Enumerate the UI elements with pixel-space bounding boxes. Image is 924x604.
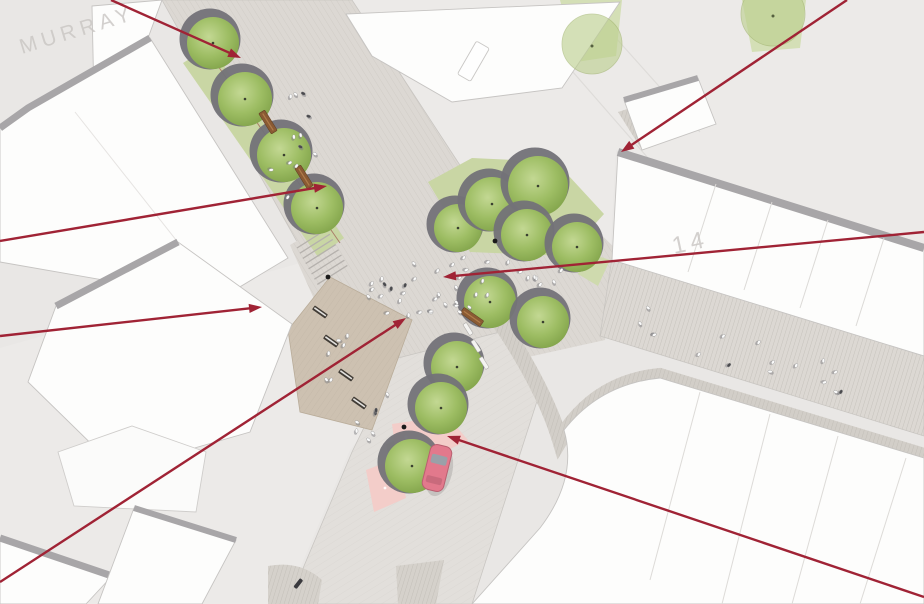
tree-trunk (440, 407, 443, 410)
pedestrian-body (336, 339, 340, 342)
tree-trunk (411, 465, 414, 468)
masterplan-drawing: MURRAY14 (0, 0, 924, 604)
bollard (326, 275, 331, 280)
pedestrian-body (355, 429, 358, 434)
pedestrian-body (375, 408, 378, 412)
pedestrian-body (327, 351, 330, 355)
tree-trunk (489, 301, 492, 304)
tree-trunk (576, 246, 579, 249)
bollard (493, 239, 498, 244)
pedestrian-body (398, 298, 401, 303)
tree-trunk (591, 45, 594, 48)
masterplan-canvas: MURRAY14 (0, 0, 924, 604)
tree-trunk (542, 321, 545, 324)
pedestrian-body (527, 275, 530, 280)
pedestrian-body (407, 313, 410, 317)
tree-trunk (526, 234, 529, 237)
sidewalk-wedge-texture (396, 560, 444, 604)
bollard (402, 425, 407, 430)
tree-trunk (283, 154, 286, 157)
pedestrian-body (380, 276, 383, 280)
pedestrian-body (289, 94, 292, 98)
pale-tree (562, 14, 622, 74)
tree-trunk (772, 15, 775, 18)
tree-trunk (457, 227, 460, 230)
tree-trunk (491, 203, 494, 206)
tree-trunk (456, 366, 459, 369)
tree-trunk (537, 185, 540, 188)
pedestrian-body (292, 135, 295, 140)
tree-trunk (244, 98, 247, 101)
tree-trunk (316, 207, 319, 210)
pedestrian-body (390, 286, 393, 291)
pedestrian-body (346, 333, 349, 337)
